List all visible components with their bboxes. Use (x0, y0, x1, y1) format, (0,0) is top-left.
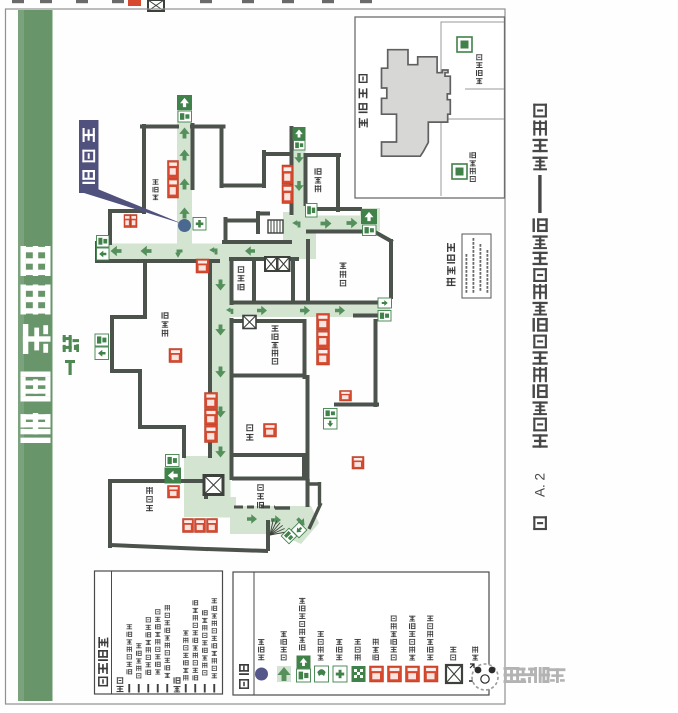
svg-text:A. 2: A. 2 (533, 473, 548, 497)
